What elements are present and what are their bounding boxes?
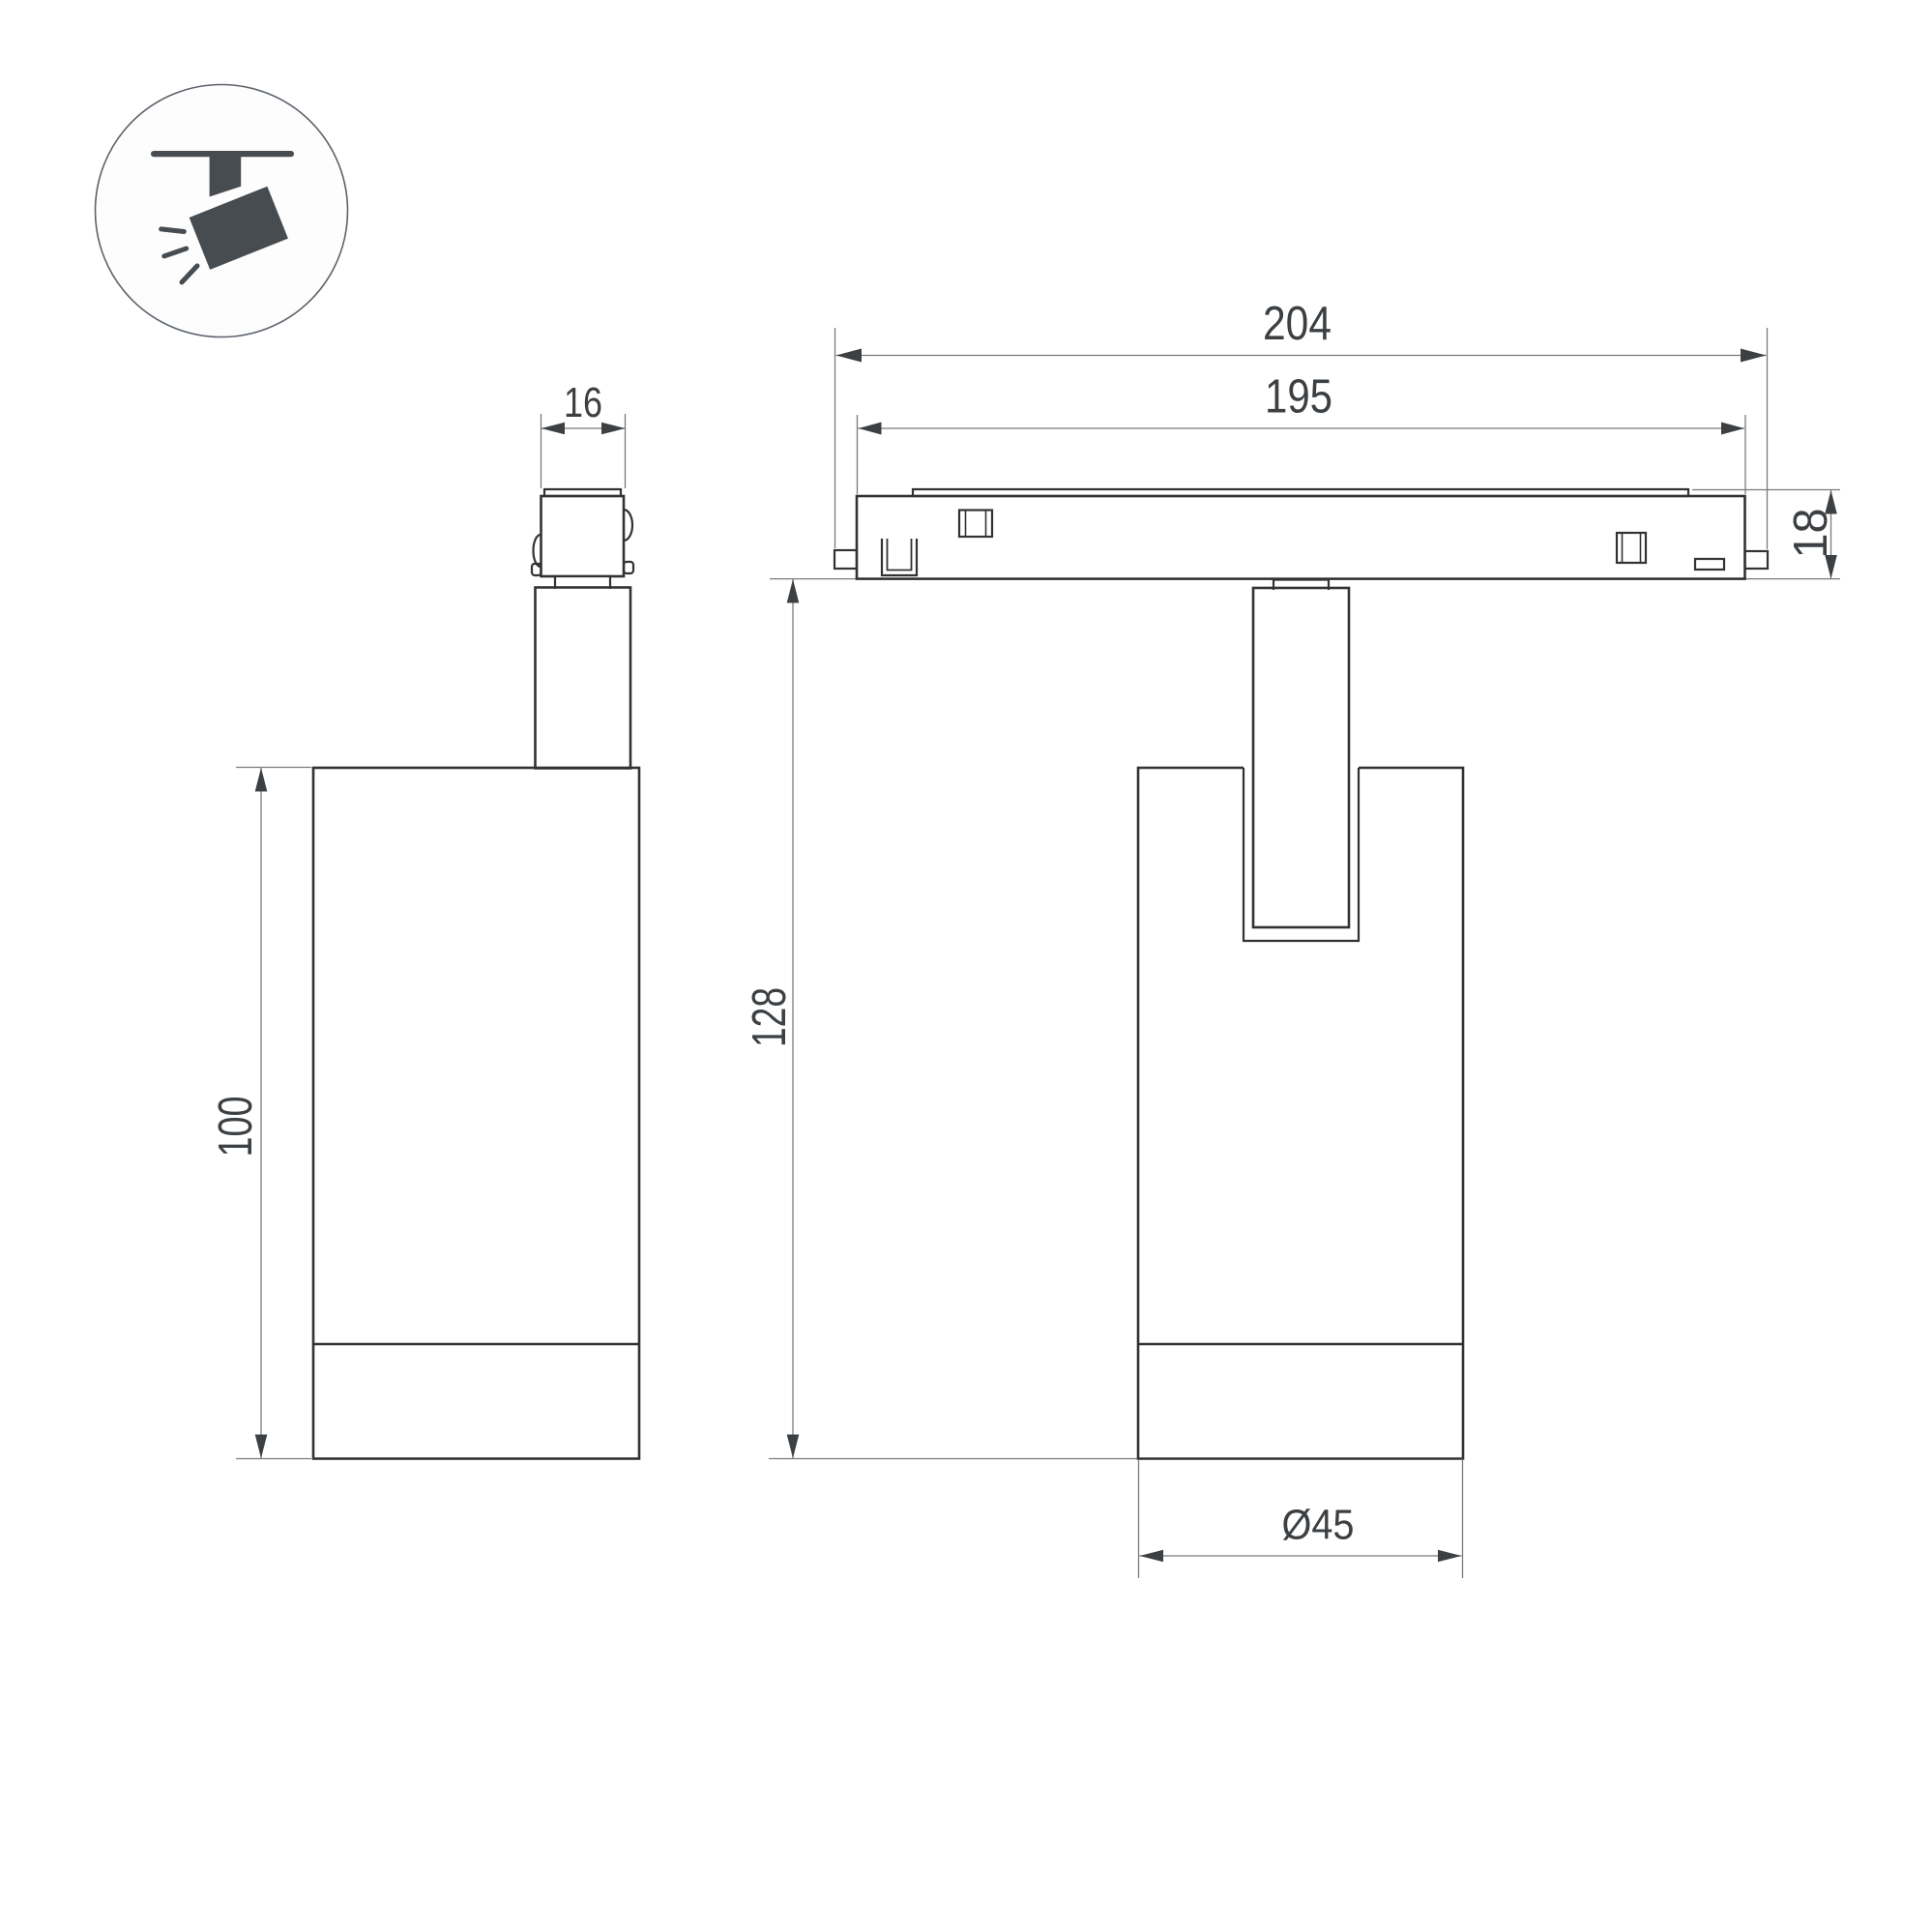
svg-text:Ø45: Ø45 (1282, 1503, 1355, 1549)
svg-text:204: 204 (1263, 297, 1332, 350)
svg-text:16: 16 (564, 380, 602, 426)
svg-text:100: 100 (209, 1097, 262, 1157)
svg-text:128: 128 (743, 987, 796, 1047)
svg-text:195: 195 (1265, 370, 1332, 424)
svg-text:18: 18 (1784, 509, 1837, 559)
